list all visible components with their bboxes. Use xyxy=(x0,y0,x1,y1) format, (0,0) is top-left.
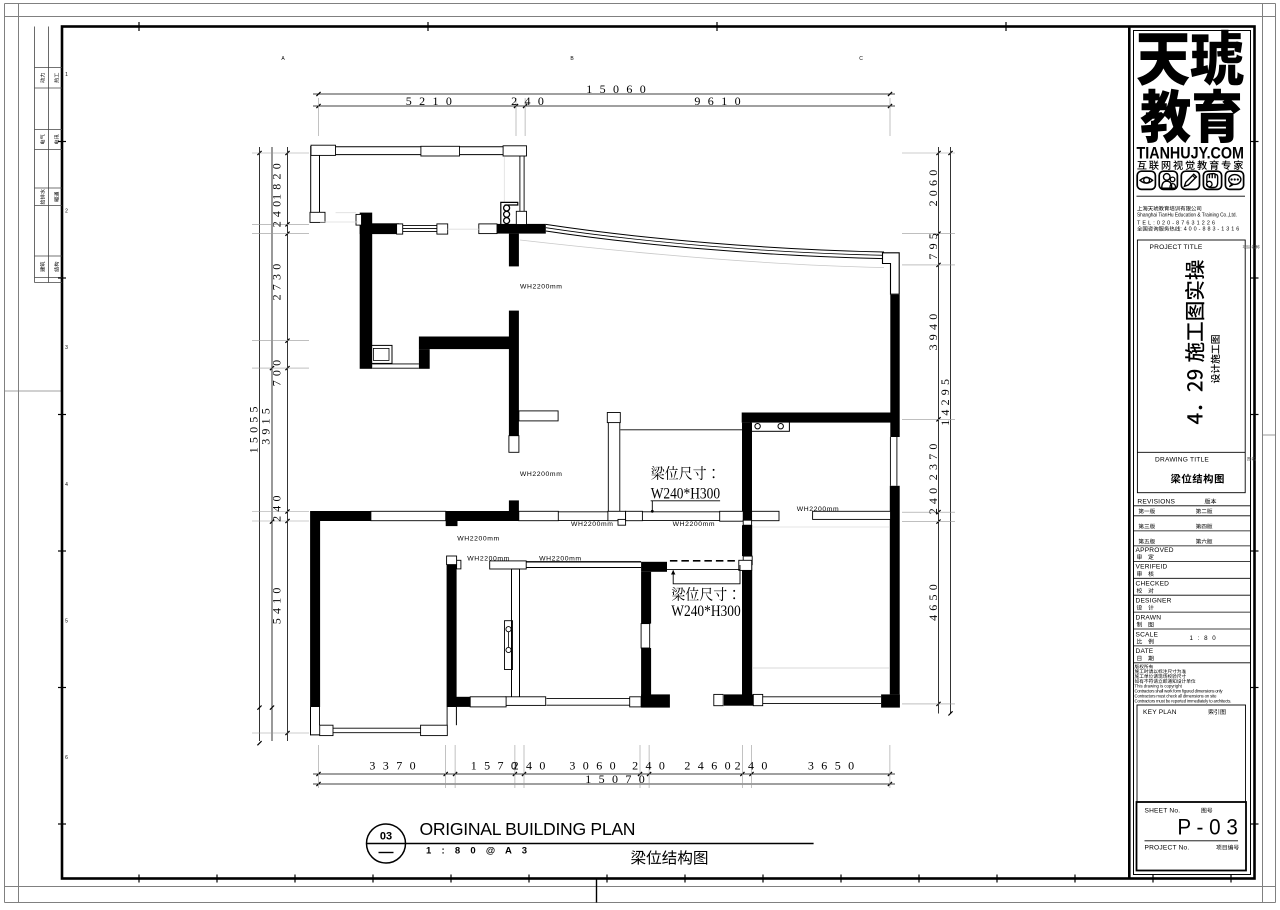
svg-text:795: 795 xyxy=(926,229,940,260)
svg-text:ORIGINAL BUILDING PLAN: ORIGINAL BUILDING PLAN xyxy=(420,819,636,839)
svg-text:4: 4 xyxy=(65,482,68,488)
svg-text:14295: 14295 xyxy=(938,375,952,426)
svg-text:DRAWN: DRAWN xyxy=(1136,614,1162,621)
svg-text:2060: 2060 xyxy=(926,166,940,207)
svg-text:W240*H300: W240*H300 xyxy=(671,603,741,620)
svg-text:1: 1 xyxy=(65,72,68,78)
svg-text:DATE: DATE xyxy=(1136,648,1154,655)
svg-text:3915: 3915 xyxy=(259,404,273,445)
svg-text:PROJECT No.: PROJECT No. xyxy=(1145,845,1190,852)
svg-text:CHECKED: CHECKED xyxy=(1136,581,1170,588)
svg-text:3060: 3060 xyxy=(569,759,623,773)
svg-text:15060: 15060 xyxy=(586,82,653,96)
svg-text:3940: 3940 xyxy=(926,310,940,351)
svg-text:240: 240 xyxy=(735,759,775,773)
svg-text:PROJECT TITLE: PROJECT TITLE xyxy=(1150,244,1203,251)
svg-text:5410: 5410 xyxy=(270,583,284,624)
svg-text:WH2200mm: WH2200mm xyxy=(673,521,716,528)
svg-text:1820: 1820 xyxy=(270,159,284,200)
svg-text:C: C xyxy=(859,56,863,62)
svg-text:03: 03 xyxy=(380,831,392,843)
svg-text:3370: 3370 xyxy=(369,759,423,773)
svg-text:DRAWING TITLE: DRAWING TITLE xyxy=(1155,457,1209,464)
svg-text:TEL:020-87631226: TEL:020-87631226 xyxy=(1137,220,1215,226)
svg-text:240: 240 xyxy=(511,94,551,108)
svg-text:2460: 2460 xyxy=(684,759,738,773)
svg-text:WH2200mm: WH2200mm xyxy=(520,471,563,478)
svg-text:Shanghai TianHu Education & Tr: Shanghai TianHu Education & Training Co.… xyxy=(1137,213,1237,219)
svg-text:5: 5 xyxy=(65,618,68,624)
svg-text:240: 240 xyxy=(632,759,672,773)
svg-text:4650: 4650 xyxy=(926,580,940,621)
svg-text:3: 3 xyxy=(65,345,68,351)
svg-text:Contractors must be reported i: Contractors must be reported immediately… xyxy=(1135,698,1232,703)
svg-text:TIANHUJY.COM: TIANHUJY.COM xyxy=(1137,143,1245,162)
svg-text:240: 240 xyxy=(270,197,284,228)
svg-text:P - 0 3: P - 0 3 xyxy=(1177,815,1238,840)
svg-text:WH2200mm: WH2200mm xyxy=(520,283,563,290)
svg-text:9610: 9610 xyxy=(694,94,748,108)
svg-text::400-883-1316: :400-883-1316 xyxy=(1180,227,1239,233)
svg-text:APPROVED: APPROVED xyxy=(1136,547,1174,554)
svg-text:WH2200mm: WH2200mm xyxy=(467,555,510,562)
svg-text:240: 240 xyxy=(270,491,284,522)
svg-text:700: 700 xyxy=(270,356,284,387)
svg-text:WH2200mm: WH2200mm xyxy=(797,506,840,513)
svg-text:6: 6 xyxy=(65,755,68,761)
svg-text:WH2200mm: WH2200mm xyxy=(571,521,614,528)
svg-text:15055: 15055 xyxy=(247,402,261,453)
svg-text:WH2200mm: WH2200mm xyxy=(457,535,500,542)
svg-text:15070: 15070 xyxy=(585,772,652,786)
svg-text:SCALE: SCALE xyxy=(1136,631,1159,638)
svg-text:240: 240 xyxy=(926,484,940,515)
svg-text:2370: 2370 xyxy=(926,439,940,480)
svg-text:W240*H300: W240*H300 xyxy=(651,485,721,502)
svg-text:2730: 2730 xyxy=(270,260,284,301)
svg-text:VERIFEID: VERIFEID xyxy=(1136,564,1168,571)
svg-text:SHEET No.: SHEET No. xyxy=(1145,808,1181,815)
svg-text:2: 2 xyxy=(65,209,68,215)
svg-text:240: 240 xyxy=(513,759,553,773)
svg-text:5210: 5210 xyxy=(406,94,460,108)
svg-text:3650: 3650 xyxy=(808,759,862,773)
svg-text:KEY PLAN: KEY PLAN xyxy=(1143,709,1177,716)
svg-text:DESIGNER: DESIGNER xyxy=(1136,598,1172,605)
svg-text:1 : 8 0: 1 : 8 0 xyxy=(1190,635,1218,642)
svg-text:WH2200mm: WH2200mm xyxy=(539,555,582,562)
svg-text:REVISIONS: REVISIONS xyxy=(1137,499,1175,506)
